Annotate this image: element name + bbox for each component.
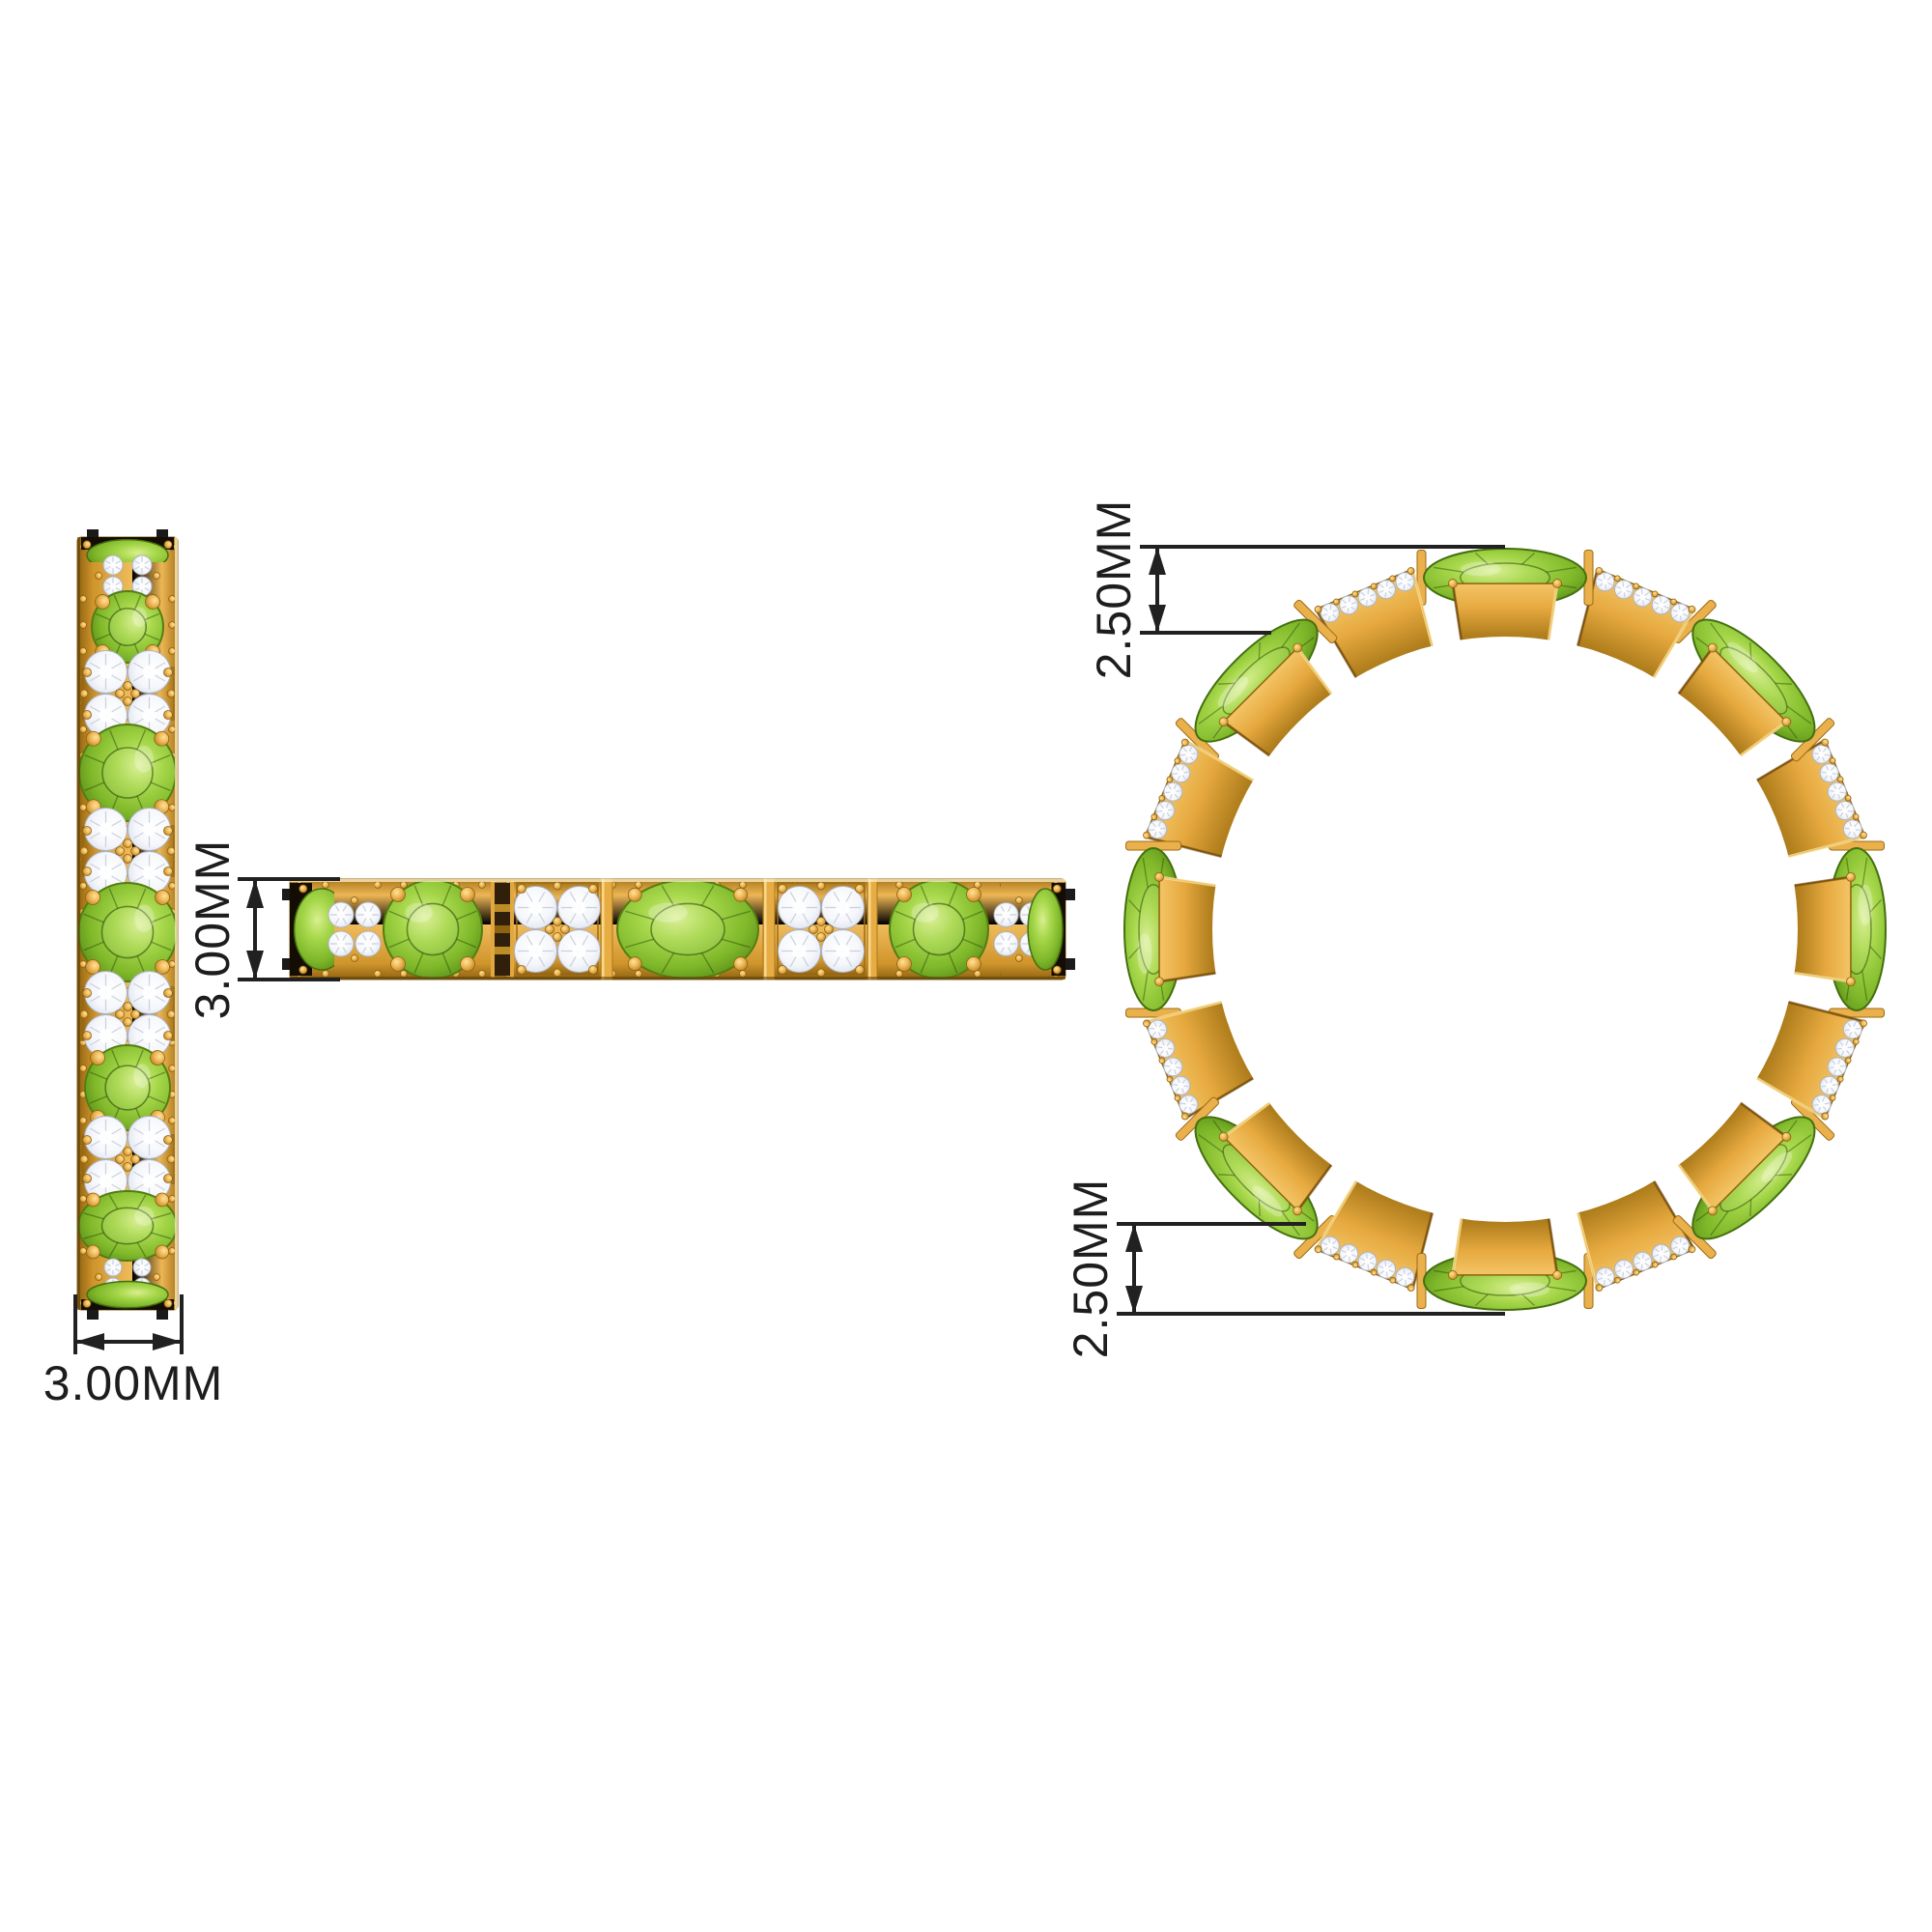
gold-plate: [1453, 1219, 1557, 1275]
ring-front-view: [1124, 549, 1886, 1310]
band-width-label: 3.00MM: [43, 1356, 224, 1410]
peridot-round-stone: [78, 883, 177, 981]
gold-plate: [1453, 583, 1557, 639]
peridot-round-stone: [890, 880, 988, 979]
diagram-canvas: 3.00MM 3.00MM 2.50MM 2.50MM: [0, 0, 1932, 1932]
peridot-oval-stone: [78, 1191, 177, 1261]
ring-segment-peridot: [1417, 549, 1593, 639]
ring-segment-peridot: [1417, 1219, 1593, 1310]
gold-divider-bar: [763, 879, 775, 980]
band-side-view: [77, 529, 178, 1320]
gold-divider-bar: [867, 879, 877, 980]
diamond-column: [328, 879, 381, 980]
band-height-label: 3.00MM: [185, 839, 240, 1020]
gold-plate: [1159, 877, 1215, 981]
gold-plate: [1795, 877, 1851, 981]
band-top-view: [282, 879, 1075, 980]
diamond-cluster-square: [515, 882, 601, 977]
ring-hole: [1212, 637, 1798, 1222]
ring-segment-peridot: [1795, 841, 1886, 1017]
peridot-round-stone: [79, 724, 176, 821]
jewelry-dimension-diagram: 3.00MM 3.00MM 2.50MM 2.50MM: [0, 0, 1932, 1932]
peridot-round-stone: [384, 880, 482, 979]
ring-edge-top-label: 2.50MM: [1087, 499, 1141, 680]
gold-divider-bar: [601, 879, 612, 980]
band-edge-stone: [1028, 883, 1075, 976]
ring-edge-bottom-label: 2.50MM: [1064, 1179, 1118, 1359]
band-edge-stone: [81, 1282, 174, 1320]
peridot-oval-stone: [617, 880, 758, 979]
band-gallery-gap: [491, 881, 514, 978]
diamond-cluster-square: [778, 882, 865, 977]
ring-segment-peridot: [1124, 841, 1215, 1017]
